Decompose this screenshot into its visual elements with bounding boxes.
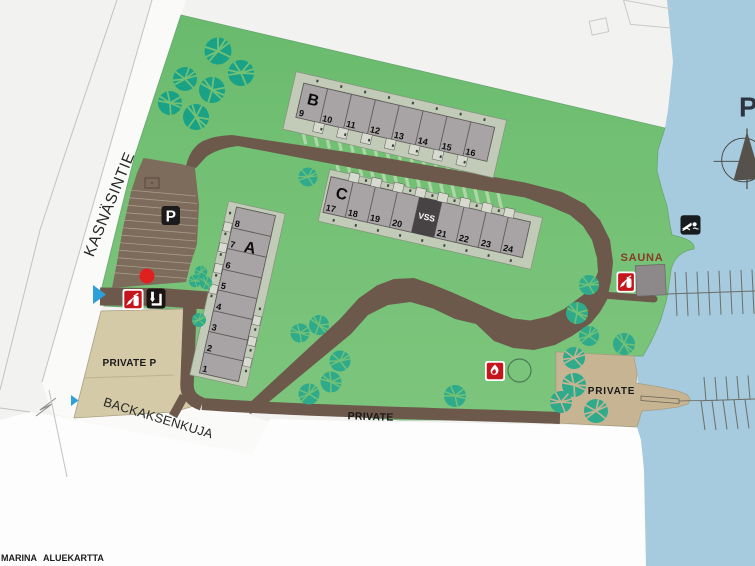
svg-text:MARINA: MARINA <box>1 553 37 563</box>
svg-text:PRIVATE: PRIVATE <box>588 386 635 397</box>
svg-text:P: P <box>166 209 176 226</box>
svg-text:ALUEKARTTA: ALUEKARTTA <box>43 553 104 563</box>
svg-text:SAUNA: SAUNA <box>620 252 663 264</box>
svg-text:P: P <box>739 92 755 123</box>
svg-text:PRIVATE P: PRIVATE P <box>102 358 156 369</box>
svg-text:PRIVATE: PRIVATE <box>347 410 393 424</box>
